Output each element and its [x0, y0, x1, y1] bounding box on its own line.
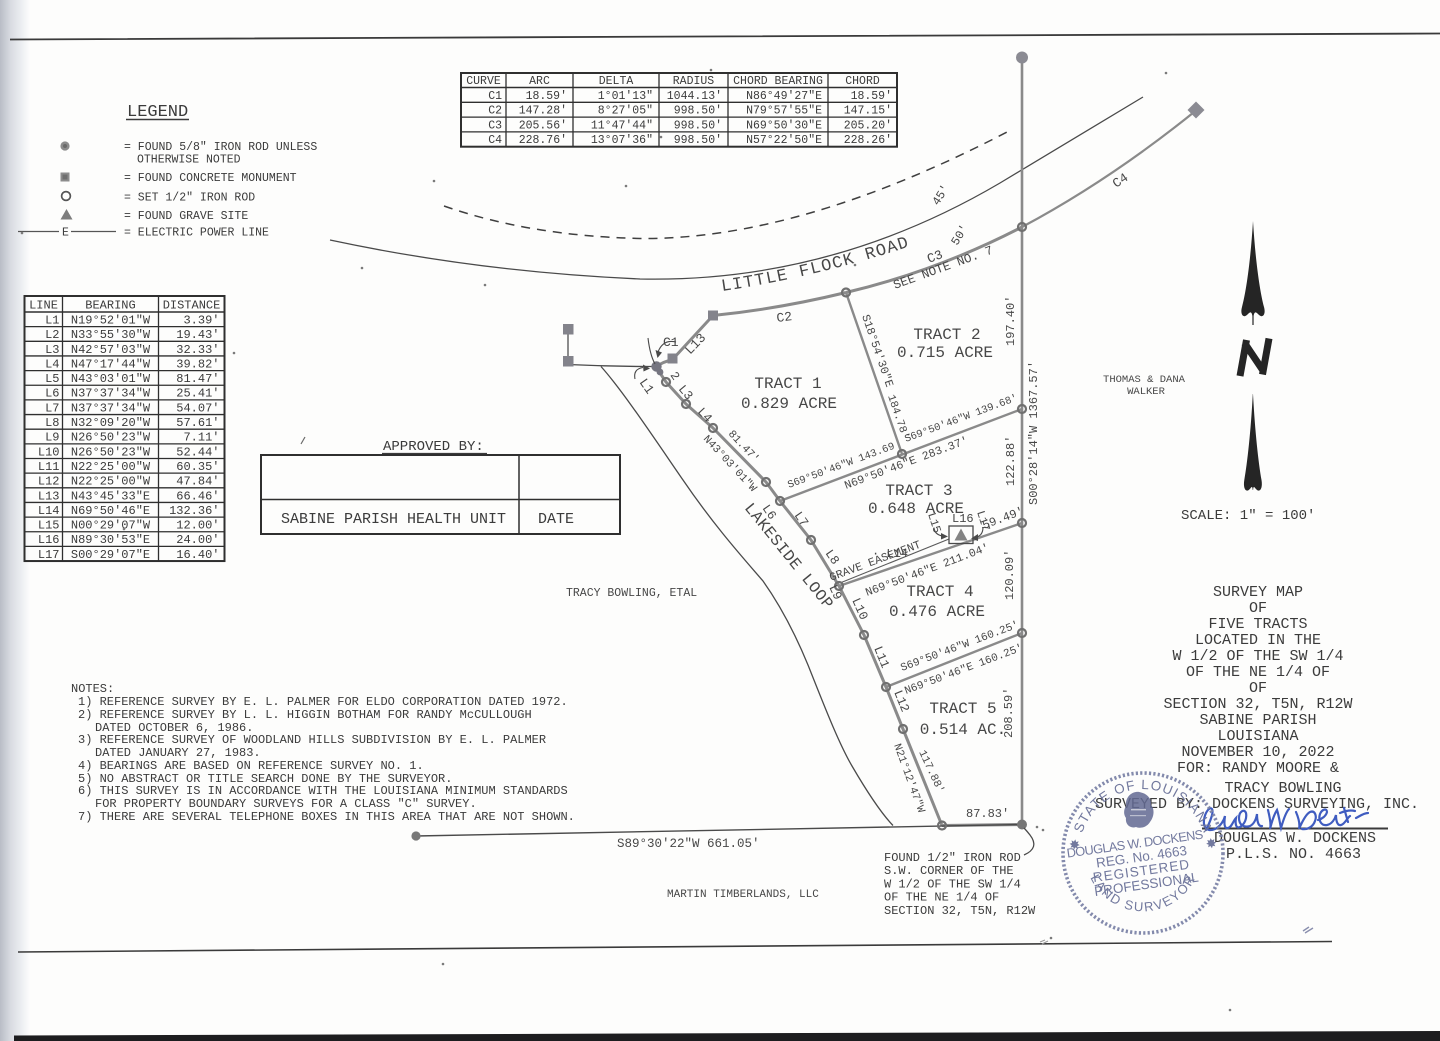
svg-text:147.15′: 147.15′	[844, 105, 892, 118]
svg-text:SABINE PARISH: SABINE PARISH	[1199, 712, 1316, 729]
svg-text:S89°30′22"W 661.05′: S89°30′22"W 661.05′	[617, 837, 760, 851]
svg-text:L17: L17	[38, 548, 60, 562]
svg-text:0.514 AC.: 0.514 AC.	[920, 721, 1006, 739]
svg-text:16.40′: 16.40′	[176, 548, 219, 562]
svg-text:L10: L10	[38, 445, 60, 459]
svg-text:FOUND 1/2" IRON ROD: FOUND 1/2" IRON ROD	[884, 851, 1021, 865]
svg-text:E: E	[62, 227, 69, 240]
svg-text:13°07′36": 13°07′36"	[591, 134, 653, 147]
svg-text:TRACT 4: TRACT 4	[906, 583, 973, 601]
svg-text:= SET 1/2" IRON ROD: = SET 1/2" IRON ROD	[124, 192, 255, 205]
svg-text:N37°37′34"W: N37°37′34"W	[71, 401, 151, 415]
svg-text:132.36′: 132.36′	[169, 504, 219, 518]
svg-text:P.L.S. NO. 4663: P.L.S. NO. 4663	[1226, 846, 1361, 863]
svg-text:N26°50′23"W: N26°50′23"W	[71, 431, 151, 445]
svg-text:DATED JANUARY 27, 1983.: DATED JANUARY 27, 1983.	[95, 746, 261, 760]
svg-text:N57°22′50"E: N57°22′50"E	[746, 134, 822, 147]
svg-text:1°01′13": 1°01′13"	[598, 90, 653, 103]
svg-text:LOCATED IN THE: LOCATED IN THE	[1195, 632, 1321, 649]
svg-text:NOTES:: NOTES:	[71, 682, 114, 696]
svg-text:LINE: LINE	[29, 299, 58, 313]
svg-text:DOUGLAS W. DOCKENS: DOUGLAS W. DOCKENS	[1214, 830, 1376, 847]
svg-text:24.00′: 24.00′	[176, 533, 219, 547]
svg-text:THOMAS & DANA: THOMAS & DANA	[1103, 374, 1186, 386]
svg-text:197.40′: 197.40′	[1004, 296, 1018, 346]
svg-text:ARC: ARC	[529, 75, 550, 88]
svg-text:L4: L4	[45, 357, 59, 371]
svg-text:TRACT 3: TRACT 3	[885, 482, 952, 500]
svg-text:60.35′: 60.35′	[176, 460, 219, 474]
svg-text:120.09′: 120.09′	[1003, 550, 1017, 600]
svg-text:3) REFERENCE SURVEY OF WOODLAN: 3) REFERENCE SURVEY OF WOODLAND HILLS SU…	[78, 733, 546, 747]
svg-text:1) REFERENCE SURVEY BY E. L. P: 1) REFERENCE SURVEY BY E. L. PALMER FOR …	[78, 695, 568, 709]
svg-text:3.39′: 3.39′	[183, 313, 219, 327]
svg-text:TRACT 2: TRACT 2	[913, 326, 980, 344]
svg-text:7) THERE ARE SEVERAL TELEPHONE: 7) THERE ARE SEVERAL TELEPHONE BOXES IN …	[78, 810, 575, 824]
svg-text:LOUISIANA: LOUISIANA	[1217, 728, 1298, 745]
svg-text:C4: C4	[488, 134, 502, 147]
svg-text:NOVEMBER 10, 2022: NOVEMBER 10, 2022	[1181, 744, 1334, 761]
svg-text:147.28′: 147.28′	[519, 105, 567, 118]
svg-text:MARTIN TIMBERLANDS, LLC: MARTIN TIMBERLANDS, LLC	[667, 889, 819, 901]
svg-text:998.50′: 998.50′	[674, 119, 722, 132]
svg-text:54.07′: 54.07′	[176, 401, 219, 415]
svg-text:= FOUND CONCRETE MONUMENT: = FOUND CONCRETE MONUMENT	[124, 172, 297, 185]
svg-text:C1: C1	[488, 90, 502, 103]
svg-text:1044.13′: 1044.13′	[667, 90, 722, 103]
svg-text:998.50′: 998.50′	[674, 134, 722, 147]
svg-text:32.33′: 32.33′	[176, 343, 219, 357]
svg-text:0.715 ACRE: 0.715 ACRE	[897, 344, 993, 362]
svg-text:4) BEARINGS ARE BASED ON REFER: 4) BEARINGS ARE BASED ON REFERENCE SURVE…	[78, 759, 424, 773]
svg-text:N89°30′53"E: N89°30′53"E	[71, 533, 150, 547]
svg-text:WALKER: WALKER	[1127, 386, 1166, 398]
svg-text:52.44′: 52.44′	[176, 445, 219, 459]
svg-text:= ELECTRIC POWER LINE: = ELECTRIC POWER LINE	[124, 227, 269, 240]
svg-text:DISTANCE: DISTANCE	[163, 299, 221, 313]
svg-text:0.476 ACRE: 0.476 ACRE	[889, 603, 985, 621]
svg-text:S.W. CORNER OF THE: S.W. CORNER OF THE	[884, 864, 1014, 878]
svg-text:205.20′: 205.20′	[844, 119, 892, 132]
svg-text:12.00′: 12.00′	[176, 519, 219, 533]
svg-text:N19°52′01"W: N19°52′01"W	[71, 313, 151, 327]
svg-text:DATE: DATE	[538, 511, 574, 528]
svg-text:7.11′: 7.11′	[183, 431, 219, 445]
svg-text:S00°29′07"E: S00°29′07"E	[71, 548, 150, 562]
svg-text:C2: C2	[488, 105, 502, 118]
svg-text:L14: L14	[38, 504, 60, 518]
svg-text:N26°50′23"W: N26°50′23"W	[71, 445, 151, 459]
svg-text:OF THE NE 1/4 OF: OF THE NE 1/4 OF	[1186, 664, 1330, 681]
svg-text:N42°57′03"W: N42°57′03"W	[71, 343, 151, 357]
svg-text:N43°45′33"E: N43°45′33"E	[71, 489, 150, 503]
svg-text:SURVEY MAP: SURVEY MAP	[1213, 584, 1303, 601]
svg-text:L13: L13	[38, 489, 60, 503]
svg-text:APPROVED BY:: APPROVED BY:	[383, 439, 484, 455]
svg-text:C2: C2	[776, 309, 793, 326]
svg-text:39.82′: 39.82′	[176, 357, 219, 371]
svg-text:· L14: · L14	[872, 547, 908, 561]
svg-text:SCALE: 1" = 100′: SCALE: 1" = 100′	[1181, 508, 1315, 524]
svg-text:57.61′: 57.61′	[176, 416, 219, 430]
svg-text:0.648 ACRE: 0.648 ACRE	[868, 500, 964, 518]
svg-text:L7: L7	[45, 401, 59, 415]
svg-text:SECTION 32, T5N, R12W: SECTION 32, T5N, R12W	[884, 904, 1036, 918]
svg-text:RADIUS: RADIUS	[673, 75, 715, 88]
svg-text:N32°09′20"W: N32°09′20"W	[71, 416, 151, 430]
svg-text:L5: L5	[45, 372, 59, 386]
svg-text:OF: OF	[1249, 600, 1267, 617]
svg-text:OF THE NE 1/4 OF: OF THE NE 1/4 OF	[884, 891, 999, 905]
svg-text:L6: L6	[45, 387, 59, 401]
svg-text:DELTA: DELTA	[599, 75, 634, 88]
svg-text:228.76′: 228.76′	[519, 134, 567, 147]
svg-text:L11: L11	[38, 460, 60, 474]
svg-text:47.84′: 47.84′	[176, 475, 219, 489]
svg-text:N69°50′30"E: N69°50′30"E	[746, 119, 822, 132]
svg-text:81.47′: 81.47′	[176, 372, 219, 386]
svg-text:998.50′: 998.50′	[674, 105, 722, 118]
svg-text:C3: C3	[488, 119, 502, 132]
svg-text:= FOUND GRAVE SITE: = FOUND GRAVE SITE	[124, 210, 248, 223]
svg-text:87.83′: 87.83′	[966, 807, 1009, 821]
svg-text:N33°55′30"W: N33°55′30"W	[71, 328, 151, 342]
svg-text:205.56′: 205.56′	[519, 119, 567, 132]
svg-text:66.46′: 66.46′	[176, 489, 219, 503]
svg-text:L12: L12	[38, 475, 60, 489]
svg-text:122.88′: 122.88′	[1004, 436, 1018, 486]
svg-text:W 1/2 OF THE SW 1/4: W 1/2 OF THE SW 1/4	[884, 877, 1021, 891]
svg-text:OF: OF	[1249, 680, 1267, 697]
svg-text:FOR PROPERTY BOUNDARY SURVEYS: FOR PROPERTY BOUNDARY SURVEYS FOR A CLAS…	[95, 797, 477, 811]
svg-text:N79°57′55"E: N79°57′55"E	[746, 105, 822, 118]
svg-text:FIVE TRACTS: FIVE TRACTS	[1208, 616, 1307, 633]
svg-text:0.829 ACRE: 0.829 ACRE	[741, 395, 837, 413]
svg-text:TRACT 5: TRACT 5	[929, 700, 996, 718]
svg-text:CHORD: CHORD	[845, 75, 880, 88]
svg-text:25.41′: 25.41′	[176, 387, 219, 401]
svg-text:N43°03′01"W: N43°03′01"W	[71, 372, 151, 386]
svg-text:18.59′: 18.59′	[526, 90, 567, 103]
svg-text:SECTION 32, T5N, R12W: SECTION 32, T5N, R12W	[1163, 696, 1352, 713]
svg-text:TRACY BOWLING, ETAL: TRACY BOWLING, ETAL	[566, 587, 697, 600]
svg-text:S00°28′14"W 1367.57′: S00°28′14"W 1367.57′	[1027, 361, 1041, 505]
svg-text:11°47′44": 11°47′44"	[591, 119, 653, 132]
svg-text:N37°37′34"W: N37°37′34"W	[71, 387, 151, 401]
svg-text:L2: L2	[45, 328, 59, 342]
svg-text:FOR: RANDY MOORE &: FOR: RANDY MOORE &	[1177, 760, 1339, 777]
svg-text:L9: L9	[45, 431, 59, 445]
svg-text:CHORD BEARING: CHORD BEARING	[733, 75, 823, 88]
svg-text:L16: L16	[38, 533, 60, 547]
svg-text:L1: L1	[45, 313, 59, 327]
svg-text:N47°17′44"W: N47°17′44"W	[71, 357, 151, 371]
svg-text:L8: L8	[45, 416, 59, 430]
svg-text:N22°25′00"W: N22°25′00"W	[71, 460, 151, 474]
svg-text:W 1/2 OF THE SW 1/4: W 1/2 OF THE SW 1/4	[1172, 648, 1343, 665]
svg-text:TRACY BOWLING: TRACY BOWLING	[1224, 780, 1341, 797]
svg-text:BEARING: BEARING	[85, 299, 135, 313]
svg-text:TRACT 1: TRACT 1	[754, 375, 821, 393]
svg-text:CURVE: CURVE	[466, 75, 501, 88]
svg-text:N86°49′27"E: N86°49′27"E	[746, 90, 822, 103]
svg-text:= FOUND 5/8" IRON ROD UNLESS: = FOUND 5/8" IRON ROD UNLESS	[124, 141, 317, 154]
svg-text:L15: L15	[38, 519, 60, 533]
svg-text:18.59′: 18.59′	[851, 90, 892, 103]
svg-text:228.26′: 228.26′	[844, 134, 892, 147]
svg-text:2) REFERENCE SURVEY BY L. L. H: 2) REFERENCE SURVEY BY L. L. HIGGIN BOTH…	[78, 708, 532, 722]
svg-text:OTHERWISE NOTED: OTHERWISE NOTED	[137, 154, 241, 167]
svg-text:N69°50′46"E: N69°50′46"E	[71, 504, 150, 518]
svg-text:N00°29′07"W: N00°29′07"W	[71, 519, 151, 533]
svg-text:L3: L3	[45, 343, 59, 357]
svg-text:6) THIS SURVEY IS IN ACCORDANC: 6) THIS SURVEY IS IN ACCORDANCE WITH THE…	[78, 784, 568, 798]
svg-text:19.43′: 19.43′	[176, 328, 219, 342]
svg-text:8°27′05": 8°27′05"	[598, 105, 653, 118]
svg-text:SABINE PARISH HEALTH UNIT: SABINE PARISH HEALTH UNIT	[281, 511, 506, 528]
svg-text:N22°25′00"W: N22°25′00"W	[71, 475, 151, 489]
